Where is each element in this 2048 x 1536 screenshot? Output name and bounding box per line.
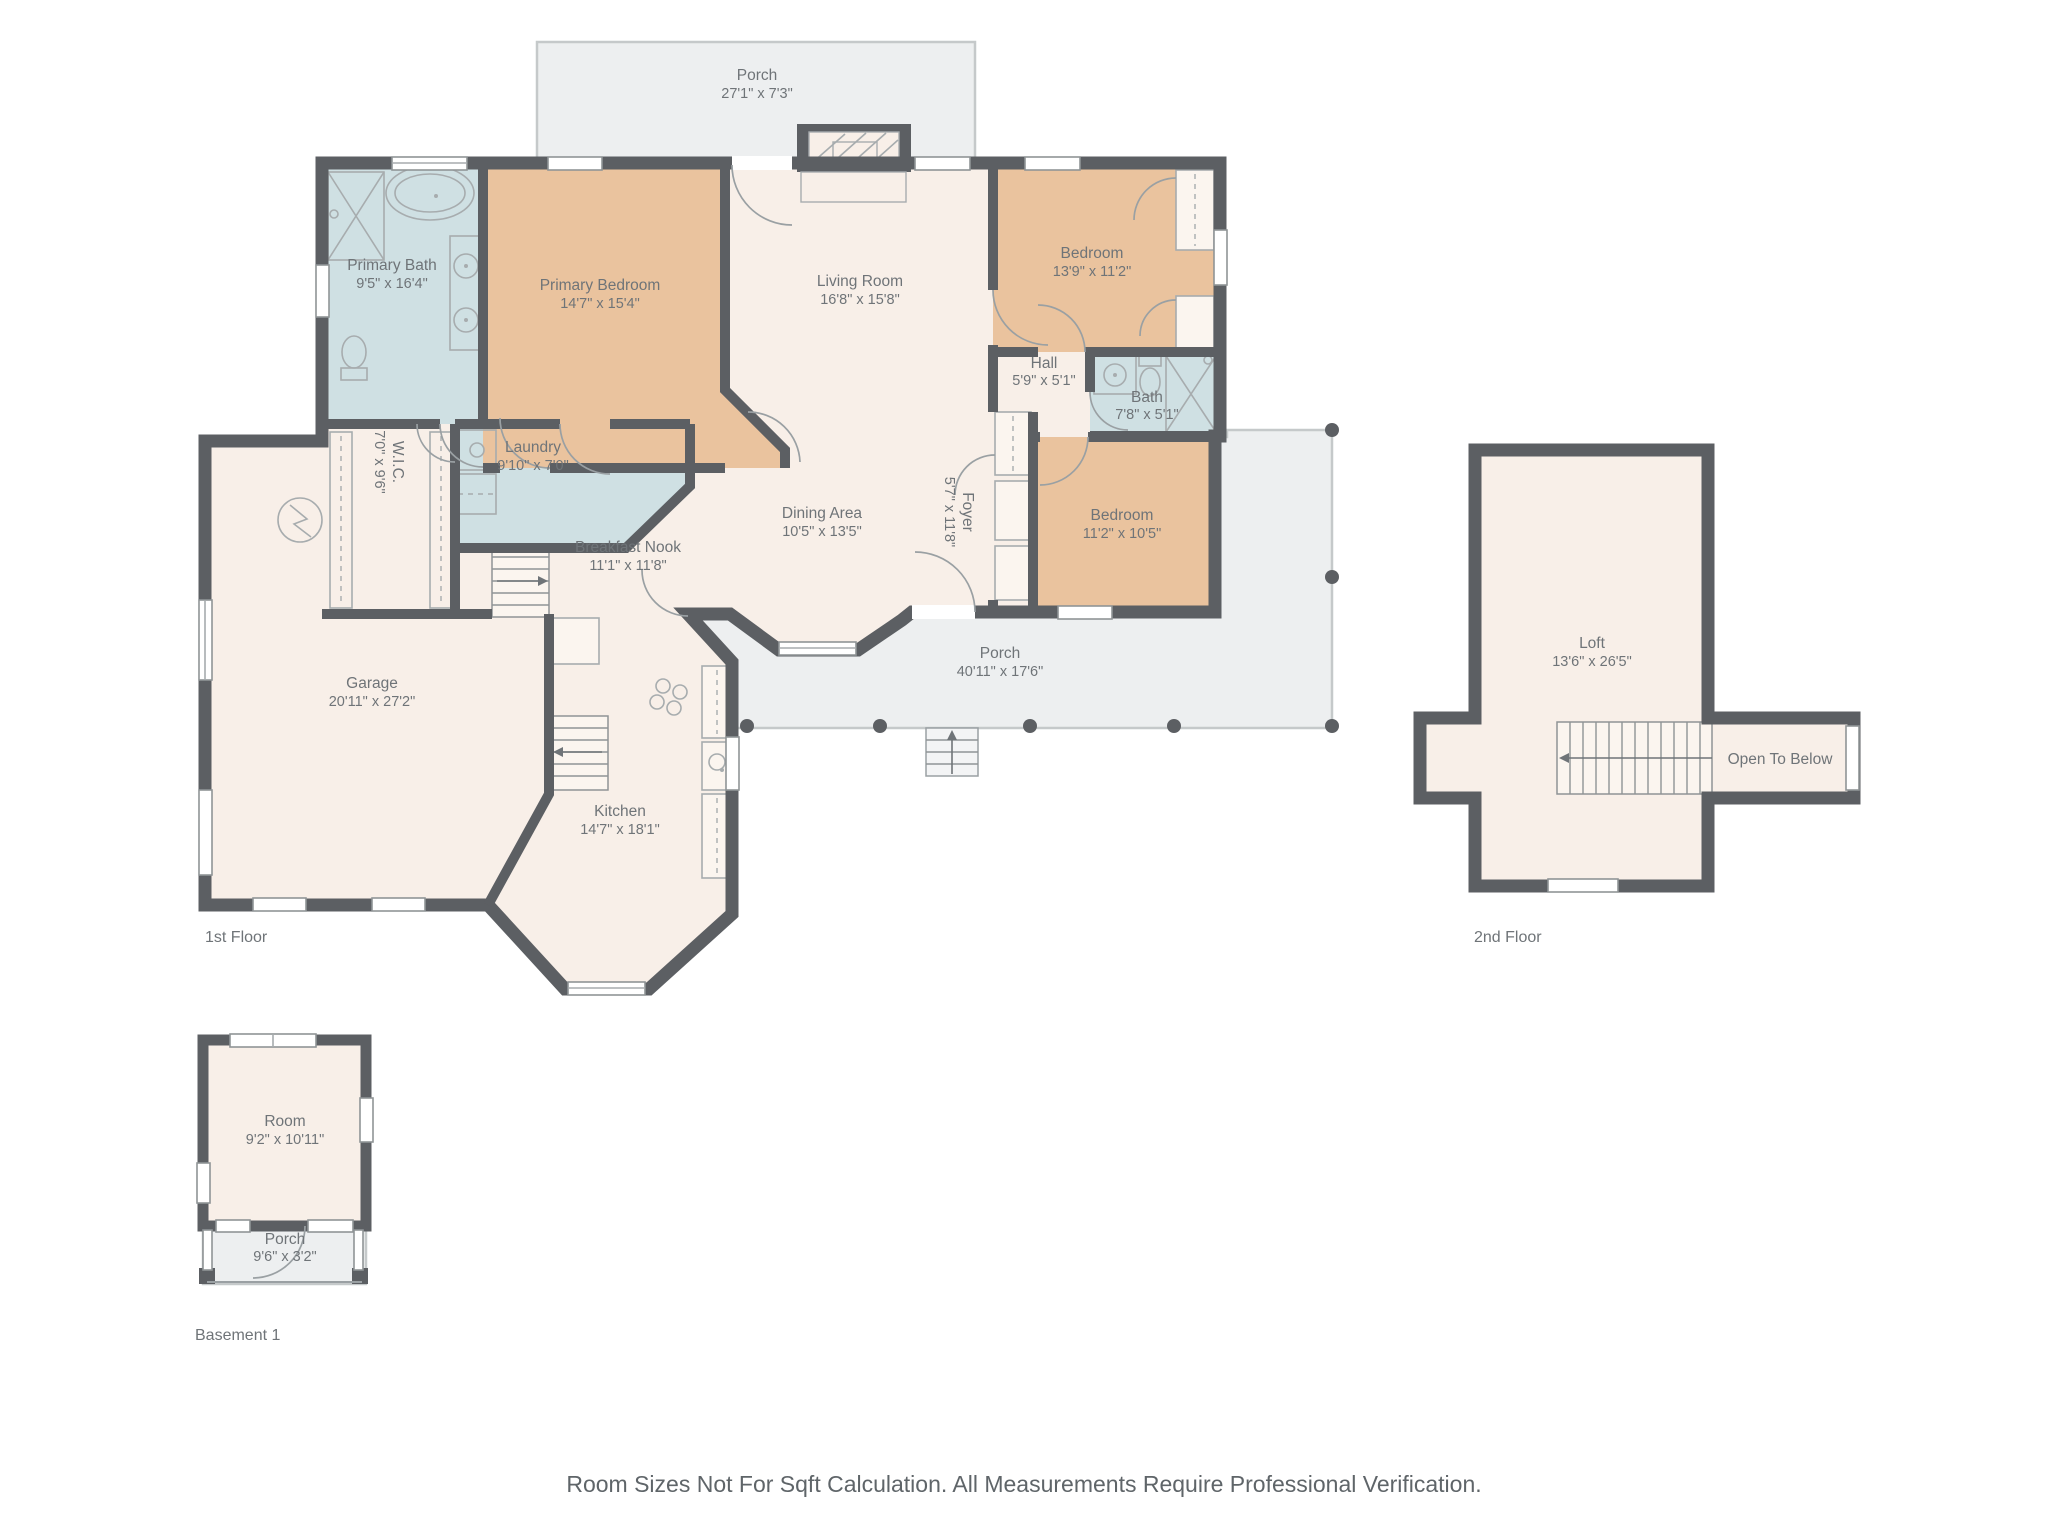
dims-breakfast-nook: 11'1" x 11'8" <box>589 558 666 574</box>
label-bedroom-top: Bedroom <box>1061 245 1124 262</box>
stairs-breakfast <box>492 545 549 617</box>
label-living-room: Living Room <box>817 273 903 290</box>
label-bedroom-right: Bedroom <box>1091 507 1154 524</box>
label-dining: Dining Area <box>782 505 863 522</box>
foyer-closets <box>995 412 1031 600</box>
dims-wic: 7'0" x 9'6" <box>371 430 387 493</box>
dims-bath: 7'8" x 5'1" <box>1115 407 1178 423</box>
label-hall: Hall <box>1031 355 1058 372</box>
label-basement-room: Room <box>264 1113 305 1130</box>
label-laundry: Laundry <box>505 439 561 456</box>
bedroom-right-fill <box>1033 437 1215 612</box>
dims-living-room: 16'8" x 15'8" <box>820 292 900 308</box>
label-primary-bedroom: Primary Bedroom <box>540 277 661 294</box>
porch-steps <box>926 728 978 776</box>
dims-bedroom-right: 11'2" x 10'5" <box>1083 526 1161 542</box>
dims-porch-wrap: 40'11" x 17'6" <box>957 664 1044 680</box>
dims-primary-bedroom: 14'7" x 15'4" <box>560 296 640 312</box>
label-garage: Garage <box>346 675 398 692</box>
dims-basement-room: 9'2" x 10'11" <box>246 1132 324 1148</box>
dims-kitchen: 14'7" x 18'1" <box>580 822 660 838</box>
label-open-to-below: Open To Below <box>1728 751 1834 768</box>
label-kitchen: Kitchen <box>594 803 646 820</box>
dims-primary-bath: 9'5" x 16'4" <box>356 276 427 292</box>
dims-foyer: 5'7" x 11'8" <box>941 477 957 547</box>
dims-laundry: 9'10" x 7'0" <box>497 458 568 474</box>
dims-basement-porch: 9'6" x 3'2" <box>253 1249 316 1265</box>
label-loft: Loft <box>1579 635 1606 652</box>
label-bath: Bath <box>1131 389 1163 406</box>
floor-plan-page: Porch 27'1" x 7'3" Primary Bath 9'5" x 1… <box>0 0 2048 1536</box>
stairs-basement <box>551 716 608 790</box>
dims-hall: 5'9" x 5'1" <box>1012 373 1075 389</box>
floor-plan-canvas: Porch 27'1" x 7'3" Primary Bath 9'5" x 1… <box>0 0 2048 1536</box>
label-second-floor: 2nd Floor <box>1474 929 1542 946</box>
stairs-loft <box>1557 722 1712 794</box>
label-porch-top: Porch <box>737 67 778 84</box>
label-basement: Basement 1 <box>195 1327 280 1344</box>
dims-dining: 10'5" x 13'5" <box>782 524 862 540</box>
dims-garage: 20'11" x 27'2" <box>329 694 416 710</box>
floor-labels: 1st Floor 2nd Floor Basement 1 <box>195 929 1542 1344</box>
label-wic: W.I.C. <box>389 441 406 483</box>
label-primary-bath: Primary Bath <box>347 257 437 274</box>
label-foyer: Foyer <box>959 492 976 532</box>
label-first-floor: 1st Floor <box>205 929 268 946</box>
label-breakfast-nook: Breakfast Nook <box>575 539 681 556</box>
disclaimer-text: Room Sizes Not For Sqft Calculation. All… <box>566 1471 1481 1497</box>
label-porch-wrap: Porch <box>980 645 1021 662</box>
dims-porch-top: 27'1" x 7'3" <box>721 86 792 102</box>
dims-bedroom-top: 13'9" x 11'2" <box>1053 264 1131 280</box>
label-basement-porch: Porch <box>265 1231 306 1248</box>
second-floor-body <box>1420 450 1854 886</box>
dims-loft: 13'6" x 26'5" <box>1552 654 1632 670</box>
